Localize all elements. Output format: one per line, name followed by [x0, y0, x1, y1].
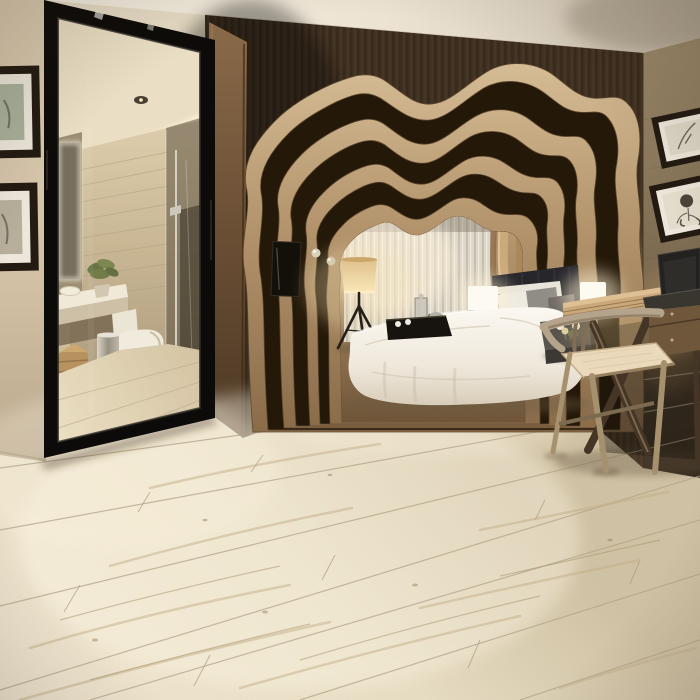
vignette — [0, 0, 700, 700]
bedroom-photo: Ceiling Left wall Framed prints on left … — [0, 0, 700, 700]
scene-canvas: Ceiling Left wall Framed prints on left … — [0, 0, 700, 700]
